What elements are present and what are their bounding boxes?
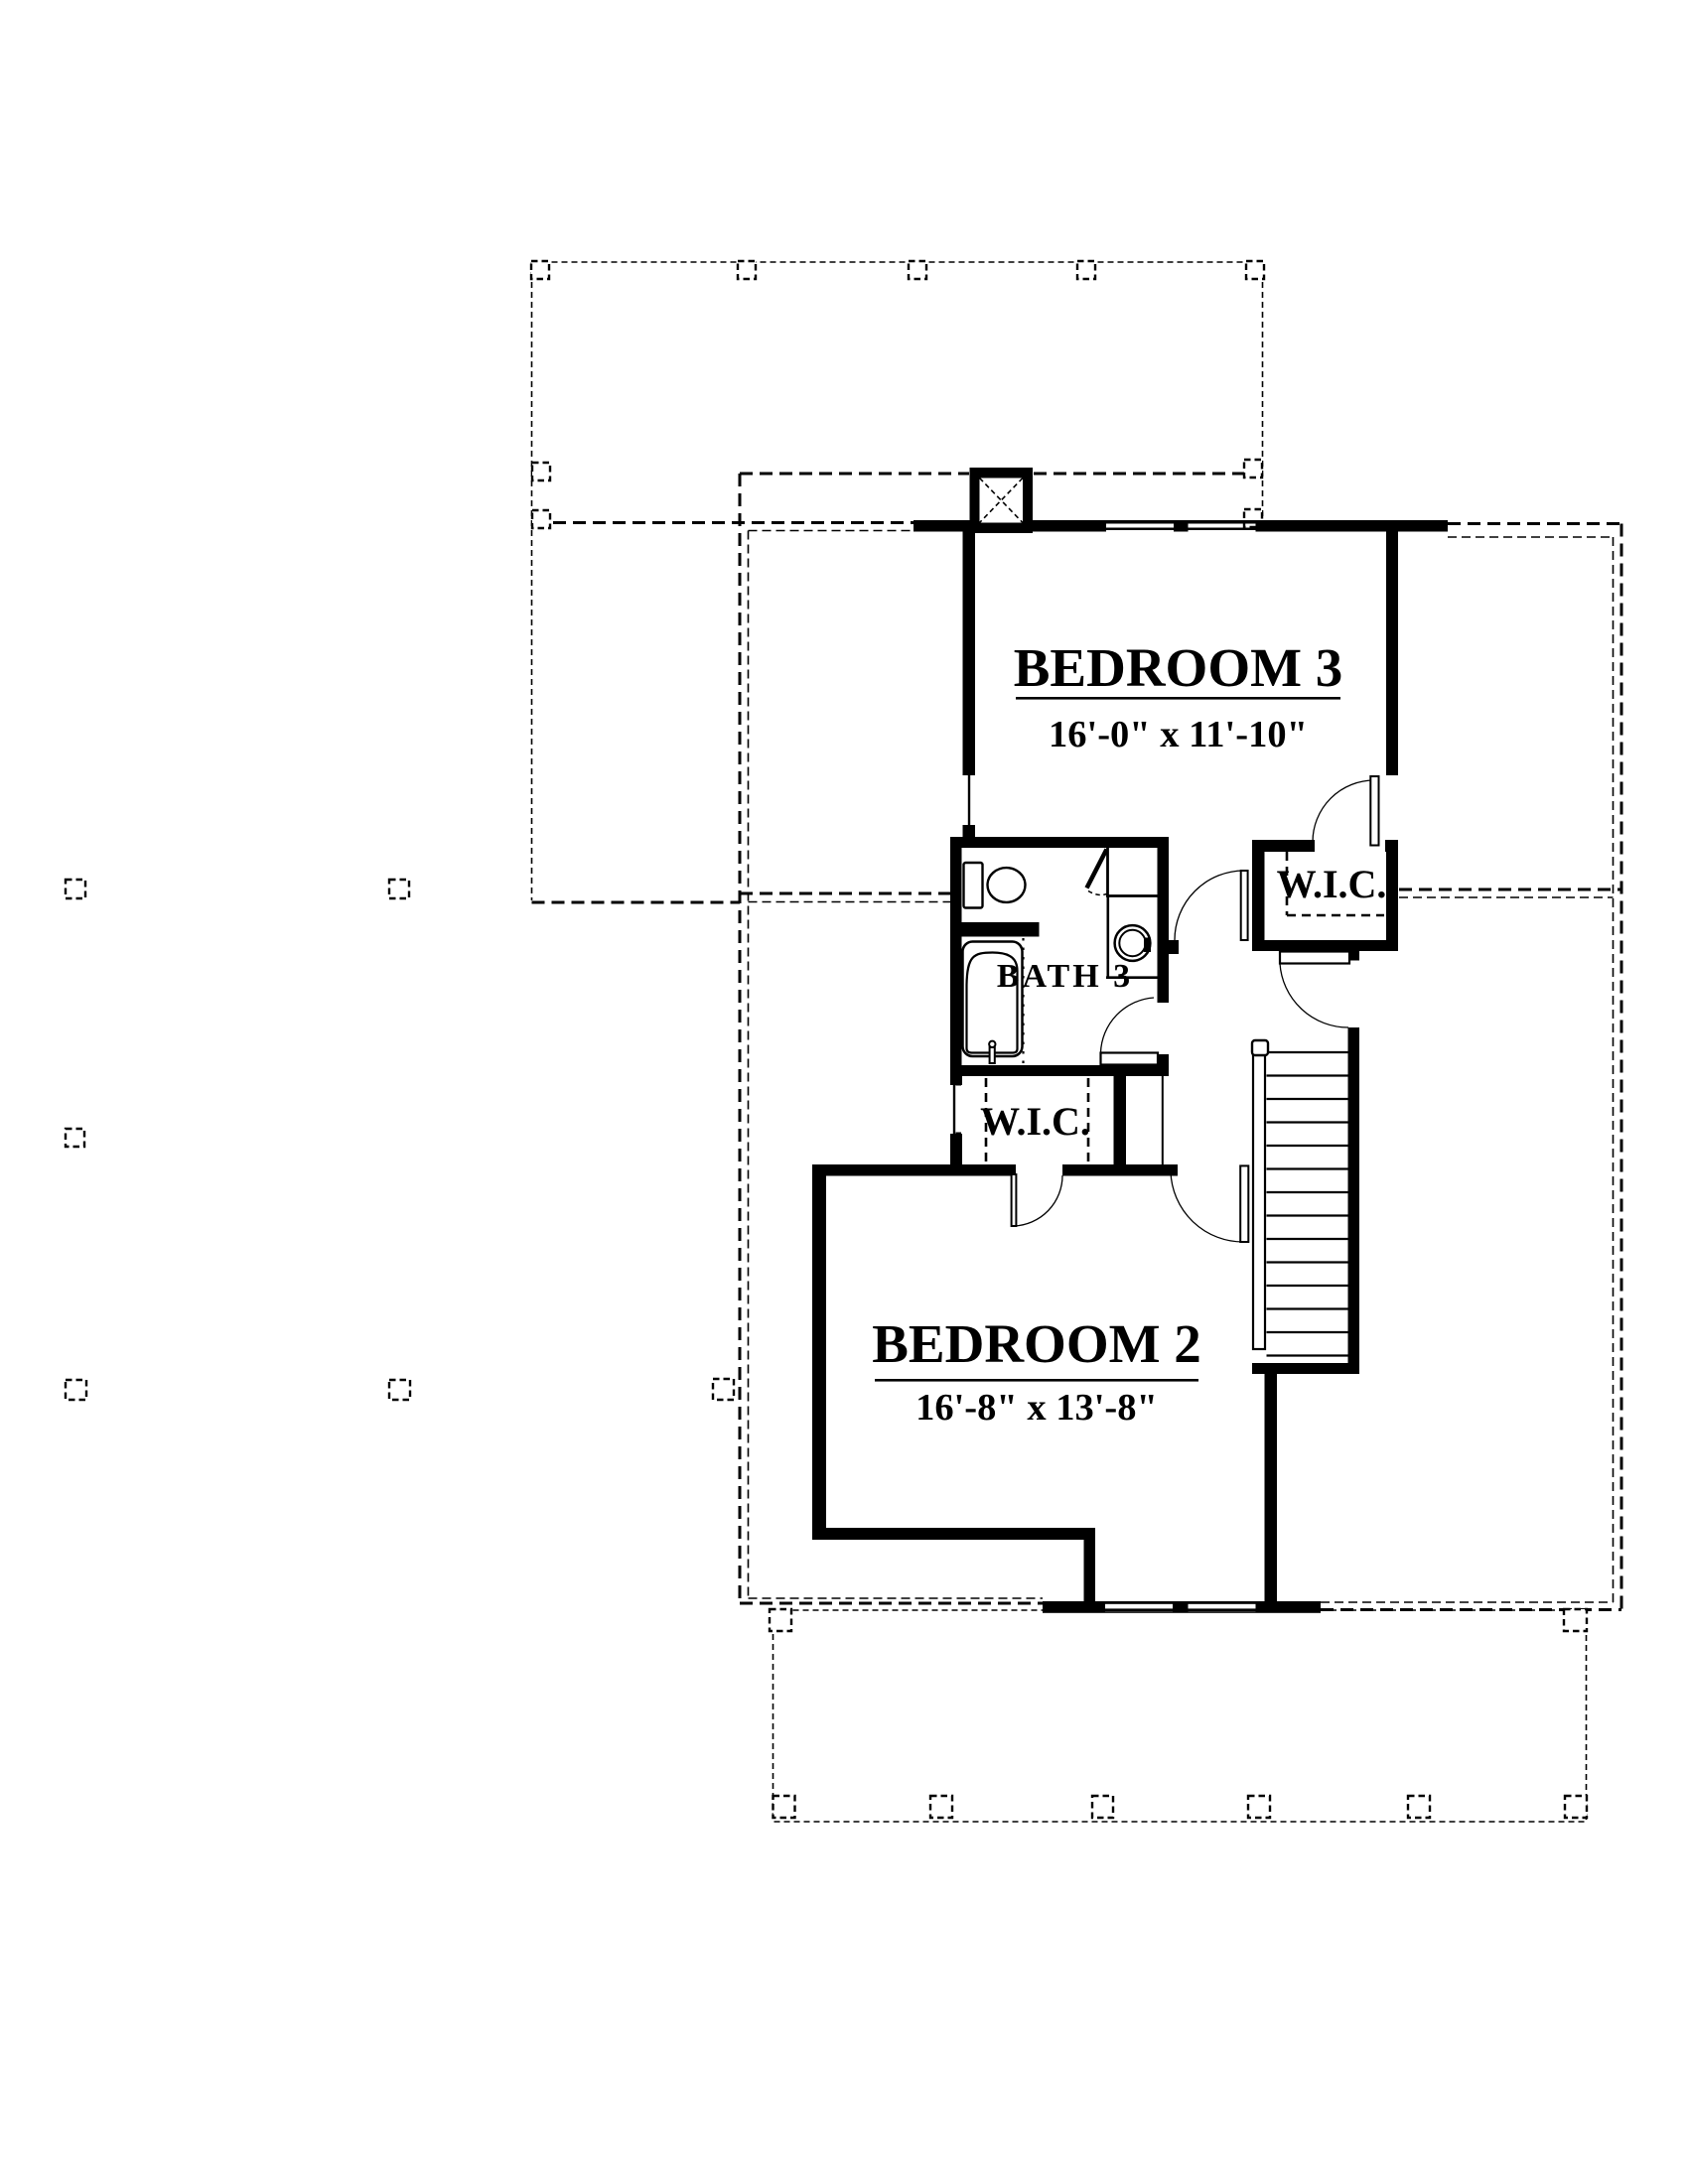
svg-text:BEDROOM 2: BEDROOM 2 <box>872 1313 1201 1374</box>
svg-text:W.I.C.: W.I.C. <box>1277 862 1387 906</box>
svg-text:16'-0" x 11'-10": 16'-0" x 11'-10" <box>1049 714 1308 755</box>
svg-text:16'-8" x 13'-8": 16'-8" x 13'-8" <box>915 1387 1158 1429</box>
svg-text:BEDROOM 3: BEDROOM 3 <box>1014 637 1343 698</box>
svg-text:BATH 3: BATH 3 <box>997 958 1133 995</box>
svg-text:W.I.C.: W.I.C. <box>980 1099 1090 1144</box>
